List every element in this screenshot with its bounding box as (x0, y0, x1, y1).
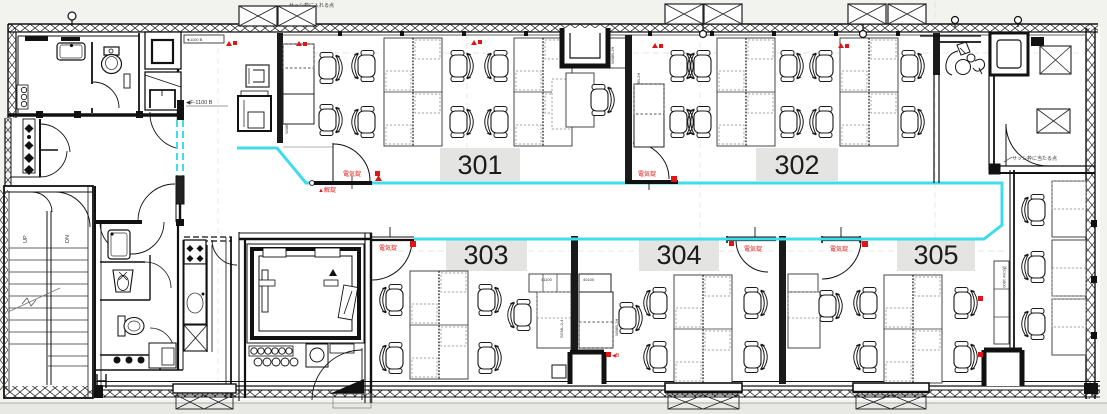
svg-text:◄1100 B: ◄1100 B (186, 37, 203, 42)
svg-text:電気錠: 電気錠 (830, 245, 848, 253)
svg-text:DN: DN (65, 235, 71, 243)
svg-text:電気錠: 電気錠 (638, 170, 656, 178)
svg-text:◀F-1100 B: ◀F-1100 B (186, 100, 213, 106)
svg-text:41100: 41100 (541, 277, 553, 282)
svg-text:電気錠: 電気錠 (379, 244, 397, 252)
svg-text:304: 304 (656, 240, 701, 270)
svg-text:▲解錠: ▲解錠 (318, 186, 336, 194)
svg-text:W08B-2H: W08B-2H (610, 47, 615, 64)
svg-text:SGML-2-4: SGML-2-4 (559, 319, 564, 338)
svg-text:◀B: ◀B (612, 353, 620, 359)
svg-text:洗C/W 1800: 洗C/W 1800 (1002, 266, 1008, 289)
svg-text:UP: UP (23, 235, 29, 243)
svg-text:302: 302 (774, 150, 819, 180)
svg-text:電気錠: 電気錠 (744, 245, 762, 253)
svg-text:305: 305 (913, 240, 958, 270)
svg-text:301: 301 (457, 150, 502, 180)
svg-text:W08B-2H: W08B-2H (614, 319, 619, 336)
svg-text:303: 303 (463, 240, 508, 270)
svg-text:40100: 40100 (583, 277, 595, 282)
svg-text:サッシ枠に当たる点: サッシ枠に当たる点 (1012, 155, 1057, 162)
